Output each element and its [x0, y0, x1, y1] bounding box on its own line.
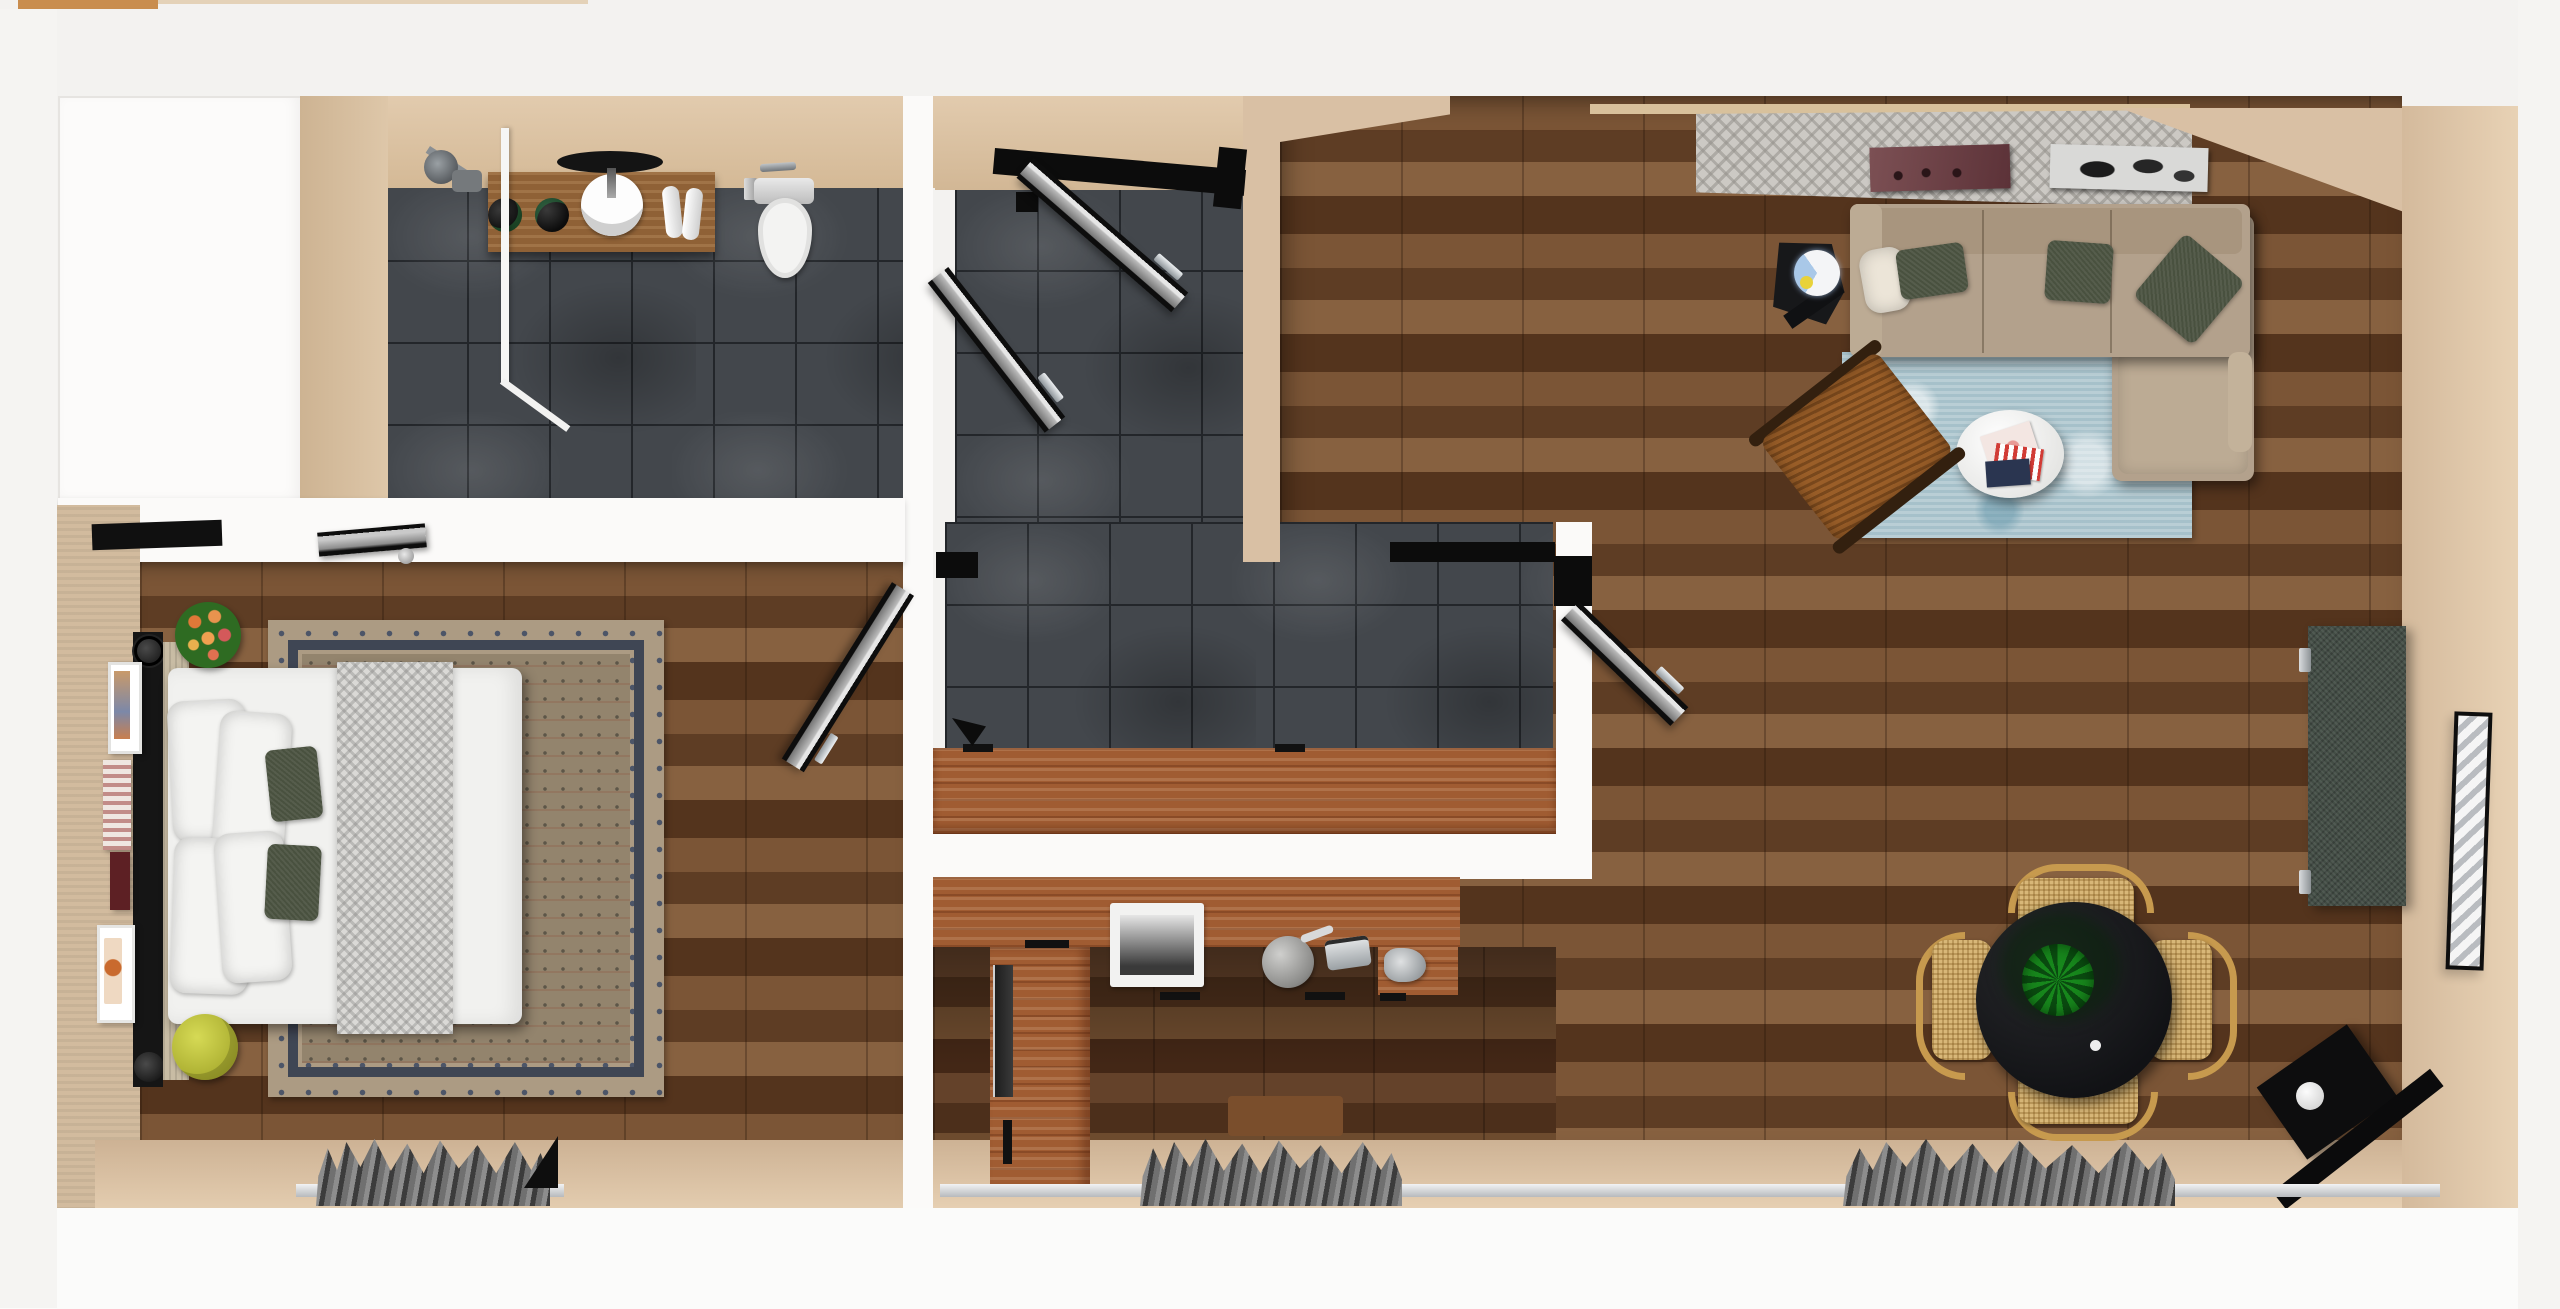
wall-frame-1 [108, 662, 142, 754]
top-edge-line [158, 0, 588, 4]
wall-frame-4 [97, 925, 135, 1023]
black-chair-ball [2296, 1082, 2324, 1110]
lamp-yellow-accent [1800, 276, 1813, 289]
magazine-3 [1985, 458, 2031, 487]
top-edge-fragment [18, 0, 158, 9]
sink-basin [1120, 915, 1194, 975]
kitchen-top-wall [914, 833, 1592, 879]
bathroom-door-handle [398, 548, 414, 564]
wall-frame-3 [110, 852, 130, 910]
tv-media-panel [2308, 626, 2406, 906]
shower-mixer [452, 170, 482, 192]
breakfast-bar-counter [933, 748, 1556, 834]
living-right-wall [2402, 106, 2518, 1208]
kettle [1262, 936, 1314, 988]
sofa-seat-divider-1 [1982, 210, 1984, 353]
counter-handle-2 [1160, 992, 1200, 1000]
entry-right-wall [1243, 96, 1280, 562]
left-margin [0, 9, 57, 1308]
toaster [1324, 935, 1372, 971]
floor-plan-canvas [0, 0, 2560, 1309]
sofa-chaise-end-pillow [2228, 352, 2252, 452]
sofa-green-cushion-1 [1895, 242, 1969, 301]
sofa-green-cushion-2 [2044, 240, 2114, 304]
oven-appliance [993, 965, 1013, 1097]
flower-bouquet-stool [175, 602, 241, 668]
living-door-hinge [1554, 556, 1592, 606]
wall-art-blackwhite [2049, 144, 2208, 192]
wall-art-mauve [1869, 144, 2010, 192]
bar-handle-2 [1275, 744, 1305, 752]
tv-bracket-top [2299, 648, 2311, 672]
black-bowl-2 [535, 198, 569, 232]
bedroom-lintel-left [92, 520, 223, 551]
counter-handle-1 [1025, 940, 1069, 948]
bed-green-pillow-2 [264, 844, 322, 922]
yellow-pouf [172, 1014, 238, 1080]
bedroom-door-hinge [936, 552, 978, 578]
counter-handle-4 [1380, 993, 1406, 1001]
cutting-board [1228, 1096, 1343, 1136]
bed-throw-runner [337, 662, 453, 1034]
sink-faucet [607, 168, 616, 198]
potted-plant [2022, 944, 2094, 1016]
tv-bracket-bottom [2299, 870, 2311, 894]
globe-lamp [1794, 250, 1840, 296]
shower-glass-panel [501, 128, 509, 384]
frame-1-art [114, 671, 130, 739]
hall-wall-lintel [1390, 542, 1555, 562]
kitchen-sink [1110, 903, 1204, 987]
wall-frame-2 [103, 760, 131, 850]
bar-handle [963, 744, 993, 752]
bed-green-pillow-1 [264, 745, 323, 822]
counter-handle-v [1003, 1120, 1012, 1164]
frame-4-art [104, 938, 122, 1004]
bathroom-left-wall [300, 96, 388, 506]
right-margin [2518, 0, 2560, 1309]
table-white-dot [2090, 1040, 2101, 1051]
kitchen-faucet [1384, 948, 1426, 982]
bathroom-entry-divider-wall [903, 96, 933, 1208]
bottom-margin [0, 1208, 2560, 1309]
balcony-room [58, 96, 304, 510]
counter-handle-3 [1305, 992, 1345, 1000]
headboard-knob-bottom [134, 1052, 164, 1082]
entry-lintel-hook [1016, 192, 1038, 212]
